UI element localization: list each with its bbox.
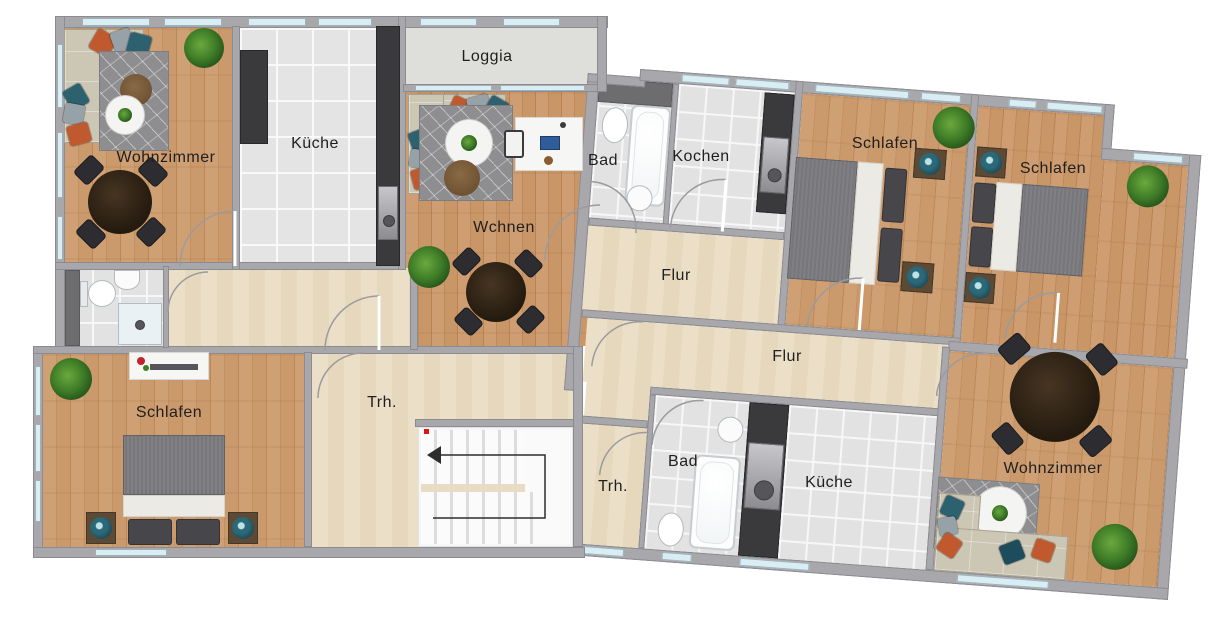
room-label-bad-bottom: Bad (668, 453, 698, 471)
room-label-treppenhaus-1: Trh. (367, 394, 397, 412)
room-label-flur-2: Flur (772, 348, 802, 366)
room-label-wohnen-mitte: Wchnen (473, 219, 535, 237)
room-label-schlafen-2: Schlafen (1020, 160, 1086, 178)
room-labels-layer: WohnzimmerKücheLoggiaWchnenBadKochenSchl… (0, 0, 1208, 618)
room-label-treppenhaus-2: Trh. (598, 478, 628, 496)
floor-plan: WohnzimmerKücheLoggiaWchnenBadKochenSchl… (0, 0, 1208, 618)
room-label-schlafen-bl: Schlafen (136, 404, 202, 422)
room-label-schlafen-1: Schlafen (852, 135, 918, 153)
room-label-kochen: Kochen (672, 148, 729, 166)
room-label-flur-1: Flur (661, 267, 691, 285)
room-label-wohnzimmer-br: Wohnzimmer (1004, 460, 1103, 478)
room-label-loggia: Loggia (461, 48, 512, 66)
room-label-kueche-tl: Küche (291, 135, 339, 153)
room-label-kueche-bottom: Küche (805, 474, 853, 492)
room-label-bad-top: Bad (588, 152, 618, 170)
room-label-wohnzimmer-tl: Wohnzimmer (117, 149, 216, 167)
